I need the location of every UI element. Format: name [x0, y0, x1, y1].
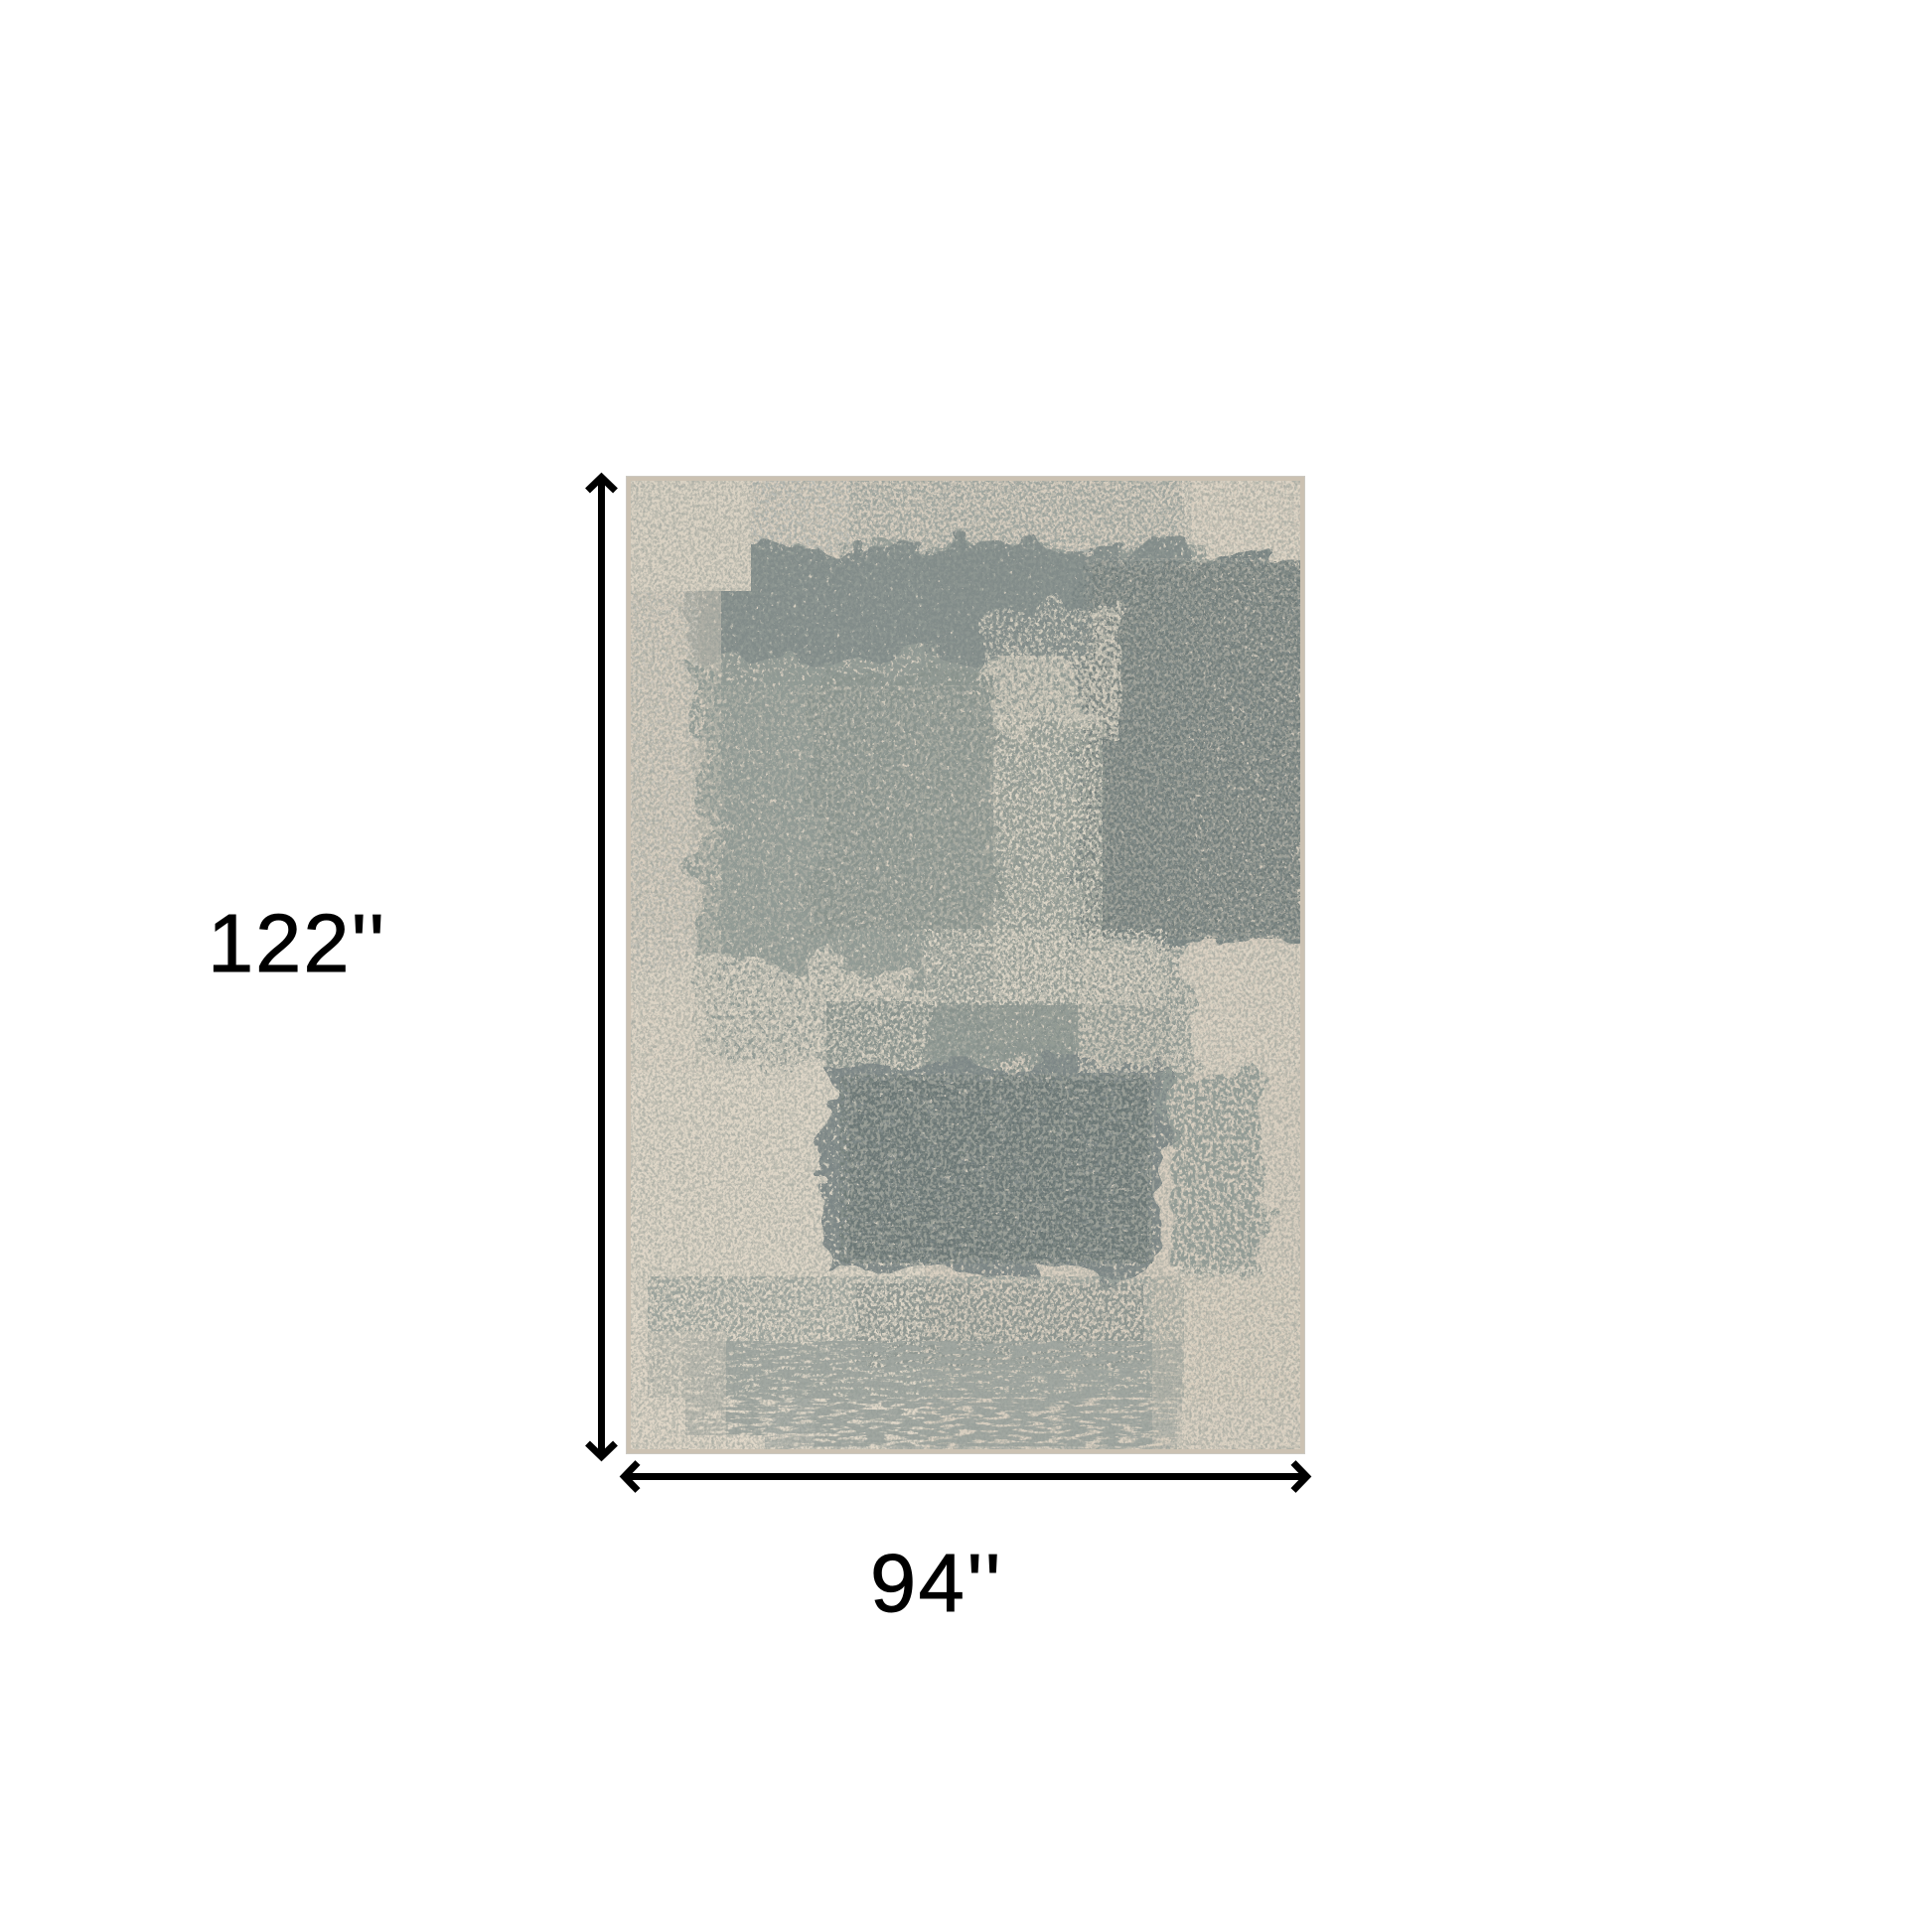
svg-text:122'': 122'' [208, 897, 386, 989]
svg-text:94'': 94'' [870, 1537, 1003, 1629]
